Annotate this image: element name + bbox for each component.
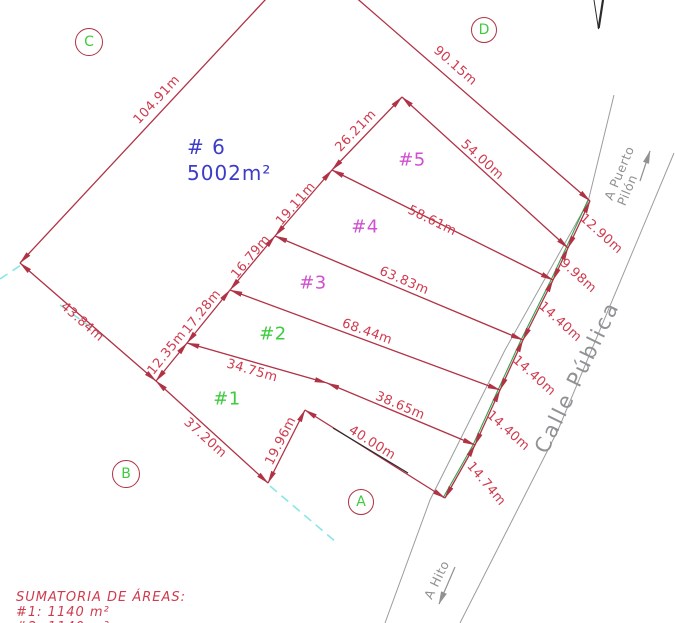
- lotline-38-65: [327, 383, 475, 445]
- survey-drawing-svg: [0, 0, 675, 623]
- road-direction-arrows: [439, 151, 650, 604]
- projection-dashed-lines: [0, 263, 336, 542]
- lotline-34-75: [187, 343, 327, 383]
- edge-43-84: [20, 263, 156, 381]
- main-lot-number: # 6: [187, 134, 271, 160]
- existing-black-line: [333, 428, 408, 473]
- edge-9-98: [553, 248, 568, 280]
- lotline-63-83: [275, 236, 523, 340]
- corner-marker-A: A: [348, 489, 374, 515]
- parcel-lines: [20, 0, 590, 498]
- edge-90-15: [307, 0, 590, 201]
- corner-marker-B: B: [112, 460, 140, 488]
- edge-14-74: [445, 445, 475, 498]
- edge-19-96: [268, 410, 305, 483]
- street-boundary-green-line: [443, 200, 588, 498]
- lotline-68-44: [230, 290, 500, 390]
- edge-12-90: [568, 201, 590, 248]
- area-summary-title: SUMATORIA DE ÁREAS:: [16, 590, 186, 605]
- area-summary-line: #1: 1140 m²: [16, 605, 186, 620]
- lotline-58-61: [332, 170, 553, 280]
- edge-26-21: [332, 97, 402, 170]
- edge-12-35: [156, 343, 187, 381]
- main-lot-area: 5002m²: [187, 160, 271, 186]
- edge-17-28: [187, 290, 230, 343]
- lotline-54-00: [402, 97, 568, 248]
- corner-marker-C: C: [75, 28, 103, 56]
- main-lot-label: # 6 5002m²: [187, 134, 271, 186]
- north-arrow: [594, 0, 603, 29]
- edge-14-40b: [500, 340, 523, 390]
- area-summary: SUMATORIA DE ÁREAS: #1: 1140 m² #2: 1140…: [16, 590, 186, 623]
- corner-marker-D: D: [471, 17, 497, 43]
- edge-104-91: [20, 0, 307, 263]
- survey-plan-canvas: # 6 5002m² Calle Pública A Puerto Pilón …: [0, 0, 675, 623]
- edge-14-40c: [475, 390, 500, 445]
- edge-16-79: [230, 236, 275, 290]
- edge-19-11: [275, 170, 332, 236]
- edge-37-20: [156, 381, 268, 483]
